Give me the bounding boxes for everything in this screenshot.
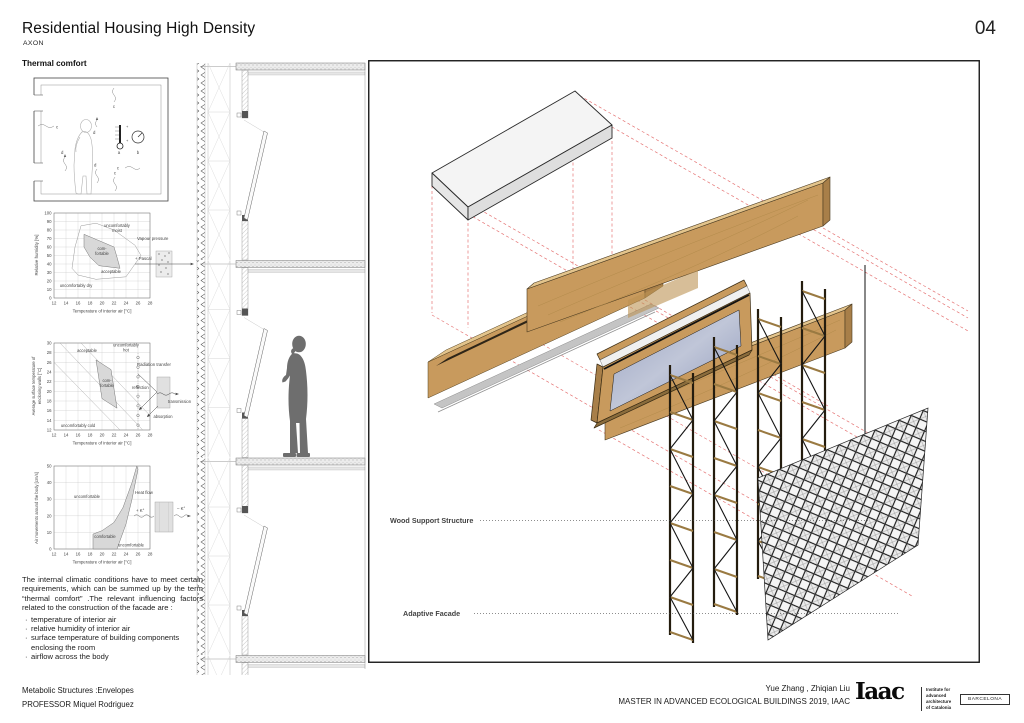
y-ticks: 0 10 20 30 40 50 60 70 80 90 100 [44,211,52,301]
svg-text:20: 20 [47,389,52,394]
svg-text:24: 24 [47,370,52,375]
svg-text:28: 28 [47,350,52,355]
svg-text:22: 22 [112,301,117,306]
svg-text:uncomfortably cold: uncomfortably cold [61,423,96,428]
x-ticks: 12 14 16 18 20 22 24 26 28 [52,433,153,438]
y-ticks: 50 40 30 20 10 0 [47,464,52,552]
x-axis-label: Temperature of interior air [°C] [73,560,132,565]
svg-text:22: 22 [112,433,117,438]
svg-text:18: 18 [47,399,52,404]
svg-text:16: 16 [76,301,81,306]
legend-d: d [93,130,96,135]
heat-minus-label: – K° [177,506,185,511]
thermometer-icon: + + [115,124,129,149]
svg-text:20: 20 [47,513,52,518]
program-credit: MASTER IN ADVANCED ECOLOGICAL BUILDINGS … [618,696,850,709]
svg-text:70: 70 [47,236,52,241]
reflection-label: reflection [132,385,149,390]
svg-text:26: 26 [136,552,141,557]
absorption-label: absorption [153,414,173,419]
legend-c: c [114,171,117,176]
list-item: airflow across the body [24,652,203,661]
svg-text:fortable: fortable [95,251,109,256]
svg-text:28: 28 [148,552,153,557]
svg-text:28: 28 [148,433,153,438]
legend-a: a [118,150,121,155]
iaac-logo: Iaac [855,680,904,703]
y-axis-label-line1: Average surface temperature of [31,356,36,416]
svg-text:18: 18 [88,552,93,557]
zone-labels: acceptable uncomfortably hot com- fortab… [61,343,140,429]
svg-text:14: 14 [64,301,69,306]
svg-text:50: 50 [47,253,52,258]
svg-text:16: 16 [47,408,52,413]
legend-d: d [61,150,64,155]
airflow-squiggles [38,88,140,191]
paragraph-body: The internal climatic conditions have to… [22,575,203,612]
diagram-title: Vapour pressure [137,236,169,241]
svg-text:12: 12 [52,552,57,557]
svg-text:24: 24 [124,552,129,557]
page-subtitle: AXON [23,40,44,47]
person-outline [74,120,93,195]
svg-text:28: 28 [148,301,153,306]
svg-text:50: 50 [47,464,52,469]
thermal-comfort-paragraph: The internal climatic conditions have to… [22,575,203,662]
y-axis-label-line2: enclosing walls [°C] [37,368,42,404]
svg-text:12: 12 [52,433,57,438]
svg-text:20: 20 [47,279,52,284]
svg-text:uncomfortable: uncomfortable [74,494,101,499]
professor-credit: PROFESSOR Miquel Rodriguez [22,700,134,709]
tagline-line: of Catalonia [926,705,951,711]
room-comfort-diagram: + + a b c c c c d d d [28,73,173,205]
y-ticks: 30 28 26 24 22 20 18 16 14 12 [47,341,52,433]
logo-divider [921,687,922,711]
legend-d: d [94,163,97,168]
legend-c: c [56,125,59,130]
svg-text:10: 10 [47,287,52,292]
svg-text:26: 26 [47,360,52,365]
transmission-label: transmission [168,399,192,404]
wood-support-label: Wood Support Structure [390,516,473,525]
section-floor-modules [197,63,365,675]
svg-text:14: 14 [47,418,52,423]
svg-text:12: 12 [52,301,57,306]
svg-text:26: 26 [136,301,141,306]
svg-text:comfortable: comfortable [94,534,116,539]
svg-text:30: 30 [47,270,52,275]
svg-text:90: 90 [47,219,52,224]
svg-text:uncomfortably dry: uncomfortably dry [60,283,93,288]
x-axis-label: Temperature of interior air [°C] [73,309,132,314]
svg-text:22: 22 [112,552,117,557]
legend-c: c [113,104,116,109]
wall-layer [155,502,173,532]
list-item: temperature of interior air [24,615,203,624]
presentation-board: Residential Housing High Density AXON 04… [0,0,1024,723]
svg-text:20: 20 [100,552,105,557]
svg-text:moist: moist [112,228,123,233]
svg-text:10: 10 [47,530,52,535]
axon-drawing: Wood Support Structure Adaptive Facade [368,60,980,663]
x-axis-label: Temperature of interior air [°C] [73,441,132,446]
svg-text:18: 18 [88,301,93,306]
legend-b: b [137,150,140,155]
svg-text:22: 22 [47,379,52,384]
plus-sign: + [126,138,129,143]
list-item: relative humidity of interior air [24,624,203,633]
svg-text:20: 20 [100,301,105,306]
svg-text:18: 18 [88,433,93,438]
diagram-title: Heat flow [135,490,154,495]
thermal-comfort-heading: Thermal comfort [22,59,87,68]
svg-text:16: 16 [76,552,81,557]
svg-text:30: 30 [47,341,52,346]
pressure-plus-label: + Pascal [135,256,152,261]
facade-section-drawing [192,57,370,675]
diagram-title: Radiation transfer [137,362,171,367]
svg-text:14: 14 [64,552,69,557]
svg-text:40: 40 [47,262,52,267]
svg-text:80: 80 [47,228,52,233]
legend-c: c [117,166,120,171]
gauge-icon [132,131,144,143]
barcelona-badge: BARCELONA [960,694,1010,705]
svg-text:60: 60 [47,245,52,250]
y-axis-label: Air movements around the body [cm/s] [34,472,39,544]
page-number: 04 [975,18,996,40]
adaptive-facade-label: Adaptive Facade [403,609,460,618]
list-item: surface temperature of building componen… [24,633,203,652]
factors-list: temperature of interior air relative hum… [24,615,203,662]
svg-text:hot: hot [123,348,130,353]
svg-text:100: 100 [44,211,52,216]
x-ticks: 12 14 16 18 20 22 24 26 28 [52,552,153,557]
footer-credits: Yue Zhang , Zhiqian Liu MASTER IN ADVANC… [618,683,850,708]
svg-text:40: 40 [47,480,52,485]
svg-text:acceptable: acceptable [77,348,98,353]
svg-text:30: 30 [47,497,52,502]
course-title: Metabolic Structures :Envelopes [22,686,134,695]
svg-text:24: 24 [124,433,129,438]
students-credit: Yue Zhang , Zhiqian Liu [618,683,850,696]
svg-text:24: 24 [124,301,129,306]
svg-text:26: 26 [136,433,141,438]
plus-sign: + [126,124,129,129]
svg-text:20: 20 [100,433,105,438]
x-ticks: 12 14 16 18 20 22 24 26 28 [52,301,153,306]
person-silhouette [282,336,310,457]
svg-text:fortable: fortable [100,383,114,388]
svg-text:acceptable: acceptable [101,269,122,274]
room-walls [31,78,168,201]
svg-text:16: 16 [76,433,81,438]
tagline-line: architecture [926,699,951,705]
iaac-tagline: Institute for advanced architecture of C… [926,687,951,711]
heat-plus-label: + K° [136,508,145,513]
svg-text:14: 14 [64,433,69,438]
page-title: Residential Housing High Density [22,20,255,38]
y-axis-label: Relative humidity [%] [34,235,39,276]
